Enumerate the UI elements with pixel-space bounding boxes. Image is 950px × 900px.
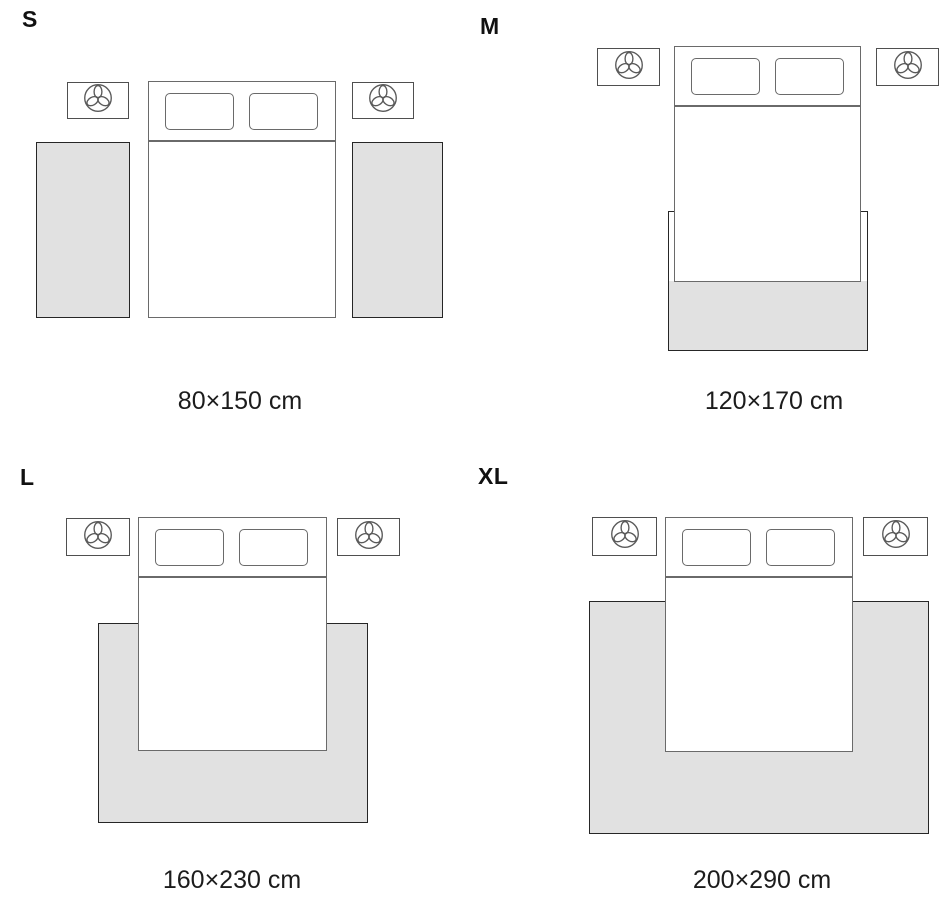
nightstand — [876, 48, 939, 86]
nightstand — [592, 517, 657, 556]
rug-left-runner — [36, 142, 130, 318]
pillow — [155, 529, 224, 566]
bed-outline — [148, 81, 336, 318]
bed-outline — [665, 517, 853, 752]
size-label-xl: XL — [478, 465, 508, 488]
bed-headboard-divider — [674, 105, 861, 107]
plant-icon — [879, 517, 913, 556]
plant-icon — [81, 81, 115, 120]
pillow — [239, 529, 308, 566]
pillow — [766, 529, 835, 566]
dimension-label-xl: 200×290 cm — [693, 868, 831, 893]
size-label-s: S — [22, 8, 38, 31]
nightstand — [352, 82, 414, 119]
nightstand — [337, 518, 400, 556]
size-label-m: M — [480, 15, 500, 38]
dimension-label-l: 160×230 cm — [163, 868, 301, 893]
pillow — [775, 58, 844, 95]
plant-icon — [352, 518, 386, 557]
bed-outline — [138, 517, 327, 751]
bed-outline — [674, 46, 861, 282]
plant-icon — [81, 518, 115, 557]
pillow — [691, 58, 760, 95]
bed-headboard-divider — [665, 576, 853, 578]
nightstand — [66, 518, 130, 556]
bed-headboard-divider — [148, 140, 336, 142]
plant-icon — [366, 81, 400, 120]
rug-visible-area — [669, 281, 867, 350]
pillow — [682, 529, 751, 566]
rug-size-guide: S 80×150 cm M 120×170 cm L — [0, 0, 950, 900]
plant-icon — [891, 48, 925, 87]
plant-icon — [612, 48, 646, 87]
nightstand — [863, 517, 928, 556]
rug-right-runner — [352, 142, 443, 318]
size-label-l: L — [20, 466, 35, 489]
nightstand — [597, 48, 660, 86]
pillow — [165, 93, 234, 130]
pillow — [249, 93, 318, 130]
dimension-label-s: 80×150 cm — [178, 389, 302, 414]
bed-headboard-divider — [138, 576, 327, 578]
nightstand — [67, 82, 129, 119]
dimension-label-m: 120×170 cm — [705, 389, 843, 414]
plant-icon — [608, 517, 642, 556]
